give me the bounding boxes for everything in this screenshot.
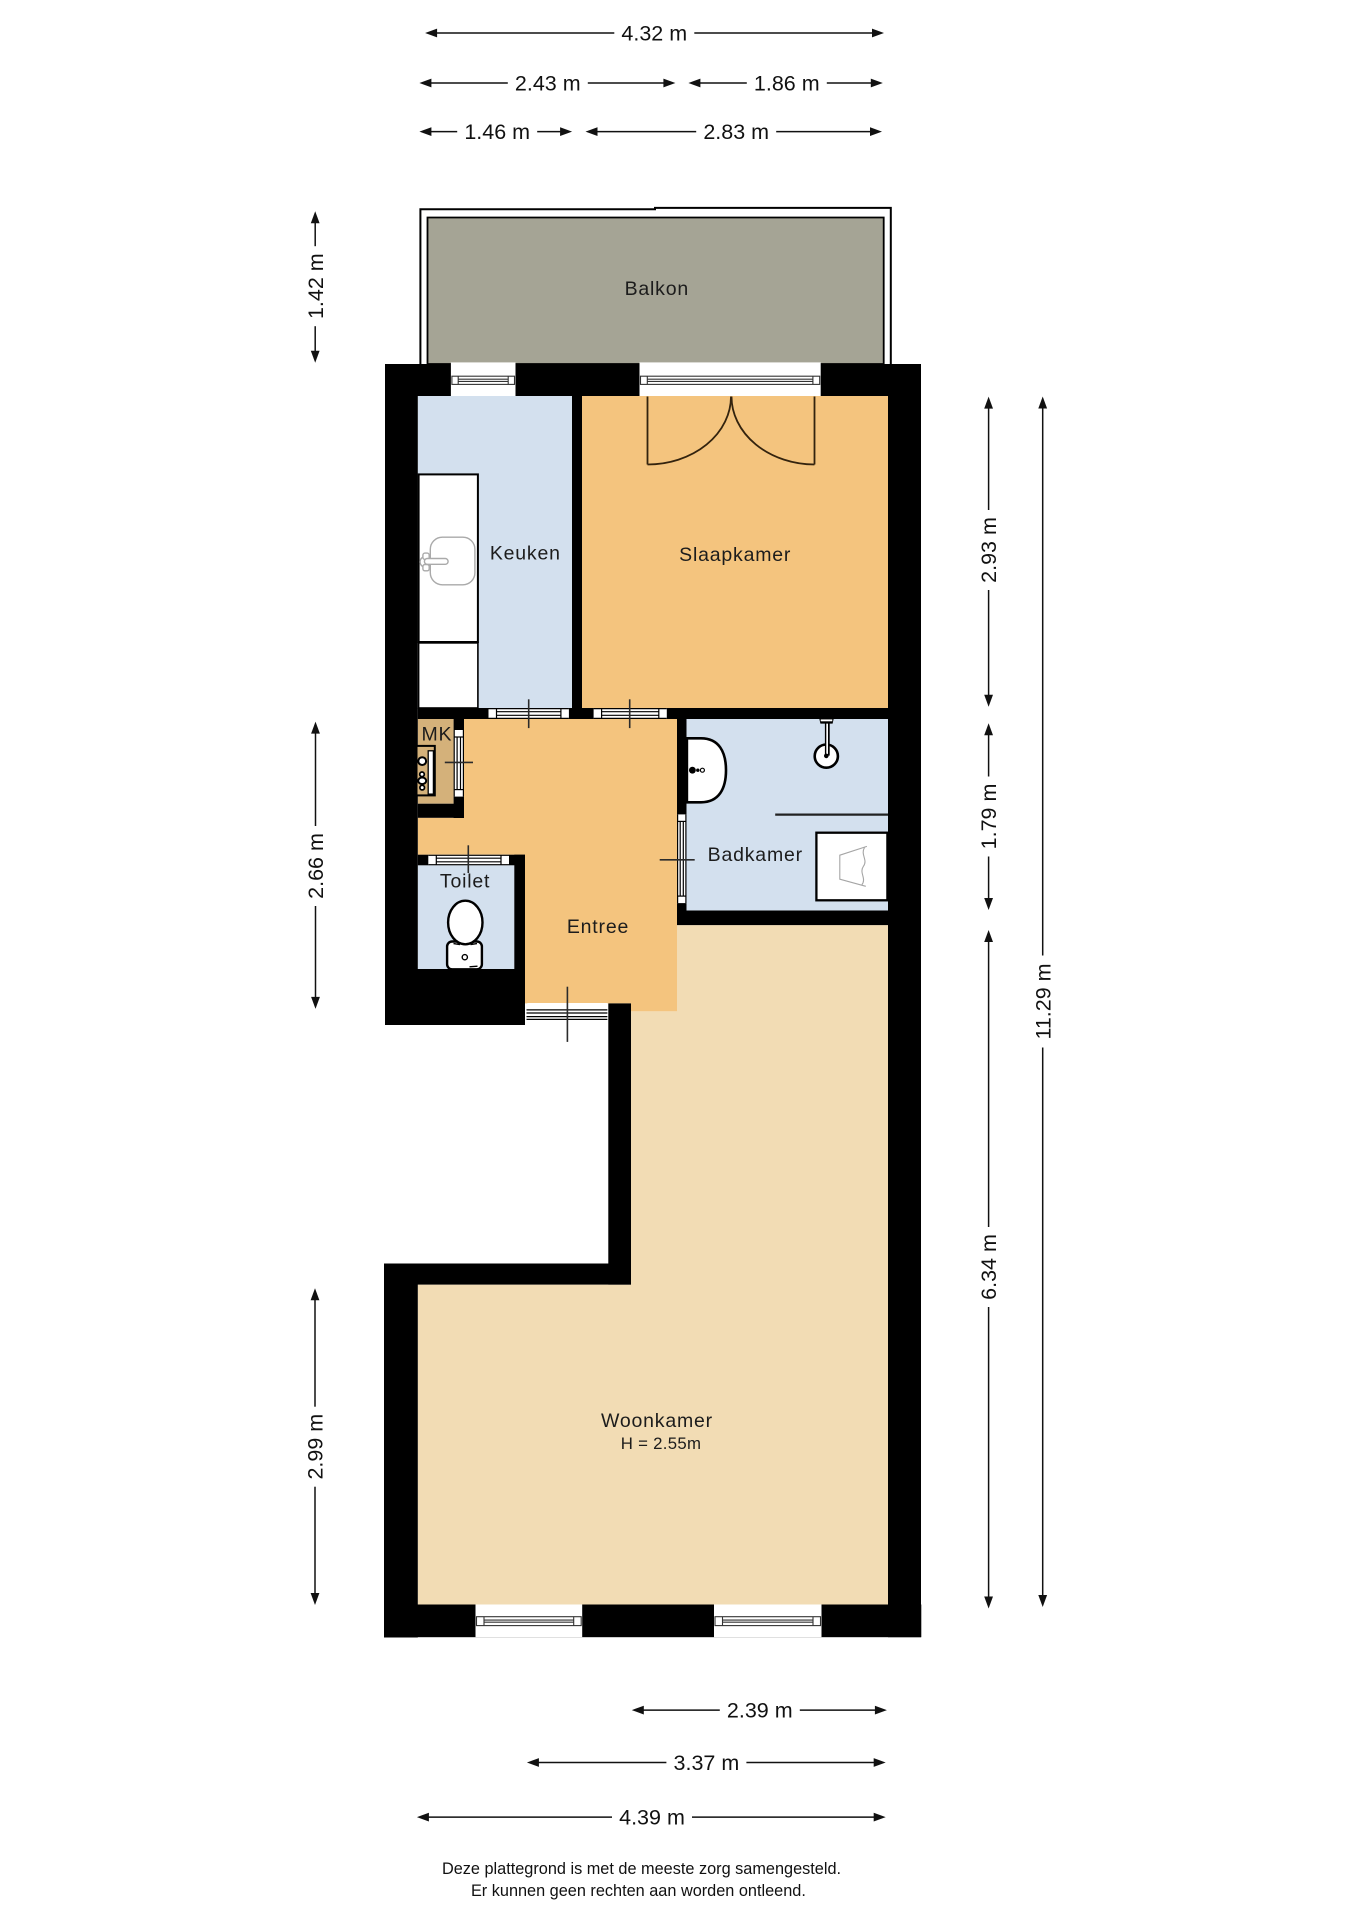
svg-text:1.79 m: 1.79 m	[977, 784, 1001, 850]
svg-text:2.43 m: 2.43 m	[515, 72, 581, 96]
svg-text:2.39 m: 2.39 m	[727, 1699, 793, 1723]
svg-text:2.93 m: 2.93 m	[977, 517, 1001, 583]
svg-text:1.46 m: 1.46 m	[464, 120, 530, 144]
svg-text:Toilet: Toilet	[440, 871, 490, 893]
svg-text:Keuken: Keuken	[490, 543, 561, 565]
svg-text:4.39 m: 4.39 m	[619, 1806, 685, 1830]
svg-text:Er kunnen geen rechten aan wor: Er kunnen geen rechten aan worden ontlee…	[471, 1882, 806, 1900]
svg-text:Balkon: Balkon	[625, 278, 689, 300]
svg-text:1.42 m: 1.42 m	[304, 253, 328, 319]
svg-text:1.86 m: 1.86 m	[754, 72, 820, 96]
svg-text:2.99 m: 2.99 m	[304, 1414, 328, 1480]
svg-text:Woonkamer: Woonkamer	[601, 1410, 713, 1432]
svg-text:11.29 m: 11.29 m	[1031, 963, 1055, 1039]
svg-text:2.83 m: 2.83 m	[703, 120, 769, 144]
svg-text:Deze plattegrond is met de mee: Deze plattegrond is met de meeste zorg s…	[442, 1860, 841, 1878]
svg-text:Badkamer: Badkamer	[708, 844, 803, 866]
svg-text:2.66 m: 2.66 m	[304, 833, 328, 899]
svg-text:4.32 m: 4.32 m	[621, 22, 687, 46]
svg-text:Entree: Entree	[567, 916, 629, 938]
svg-text:H = 2.55m: H = 2.55m	[621, 1434, 702, 1453]
svg-text:3.37 m: 3.37 m	[674, 1751, 740, 1775]
svg-text:Slaapkamer: Slaapkamer	[679, 544, 791, 566]
svg-text:MK: MK	[421, 724, 452, 746]
svg-text:6.34 m: 6.34 m	[977, 1234, 1001, 1300]
